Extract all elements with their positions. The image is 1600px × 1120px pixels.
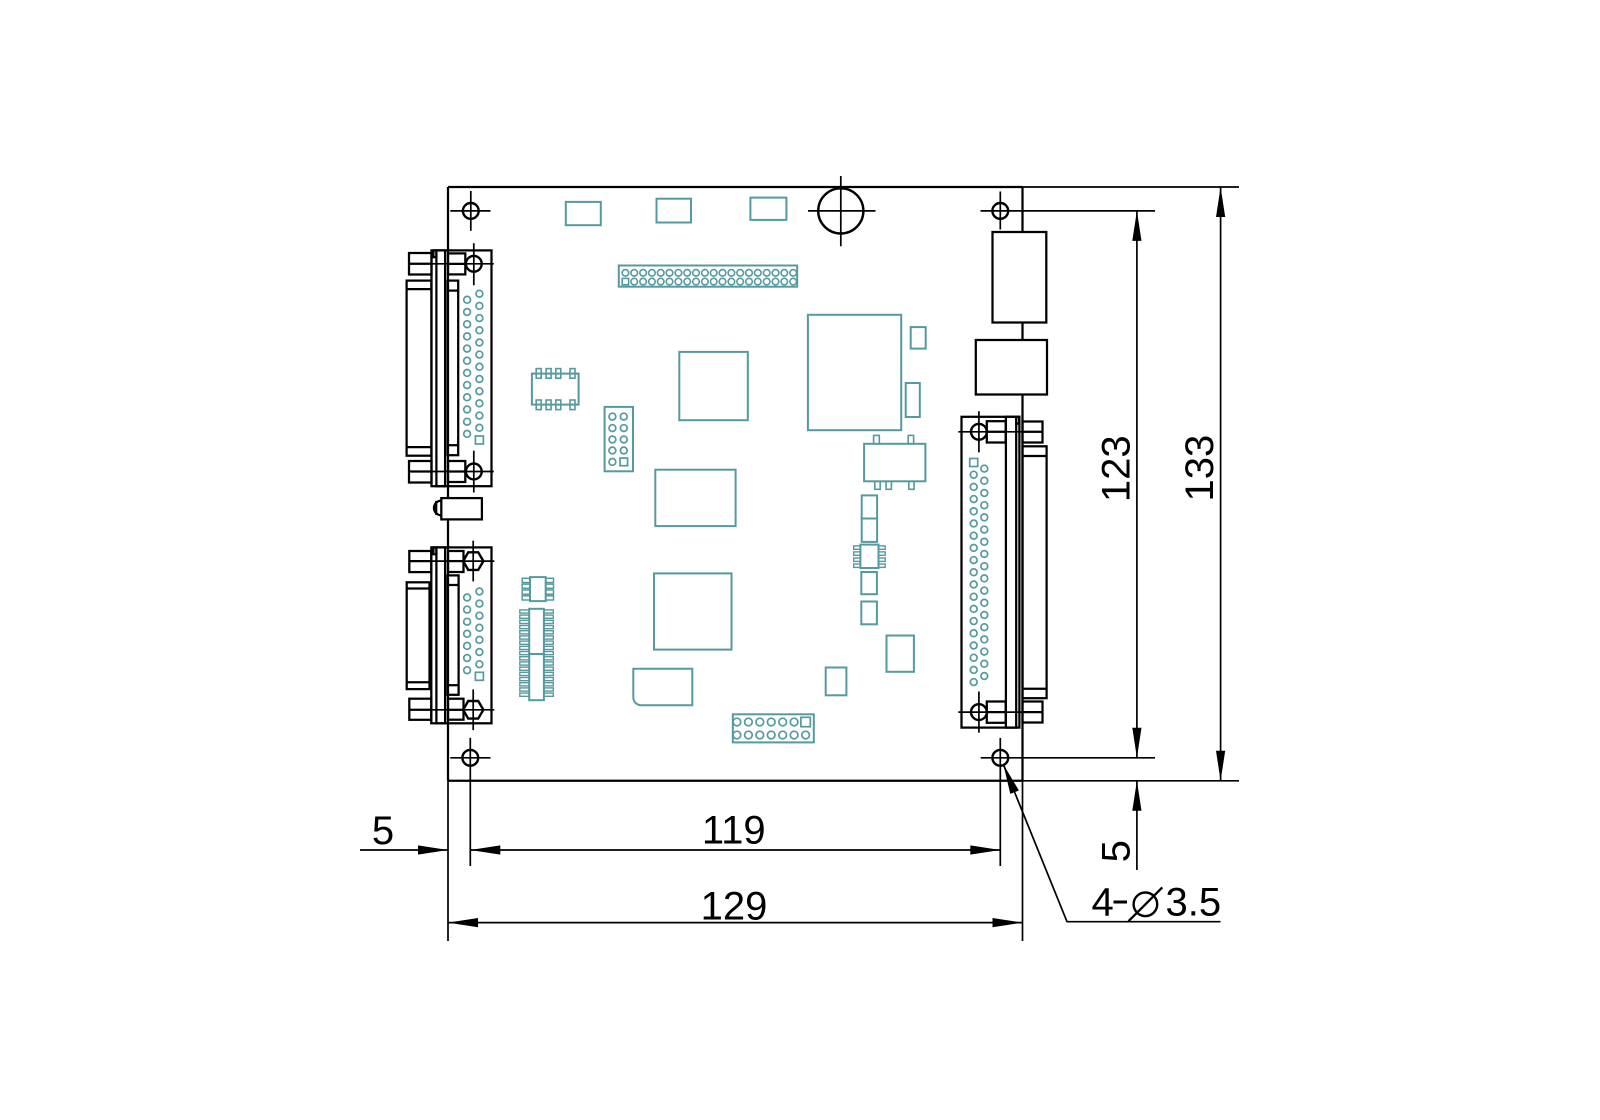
svg-text:4: 4 (1092, 881, 1114, 925)
svg-text:119: 119 (702, 809, 766, 853)
svg-text:5: 5 (1094, 840, 1138, 862)
svg-text:123: 123 (1094, 435, 1138, 502)
svg-text:3.5: 3.5 (1166, 881, 1222, 925)
svg-text:5: 5 (372, 809, 394, 853)
svg-text:129: 129 (701, 885, 768, 929)
svg-text:133: 133 (1178, 435, 1222, 502)
